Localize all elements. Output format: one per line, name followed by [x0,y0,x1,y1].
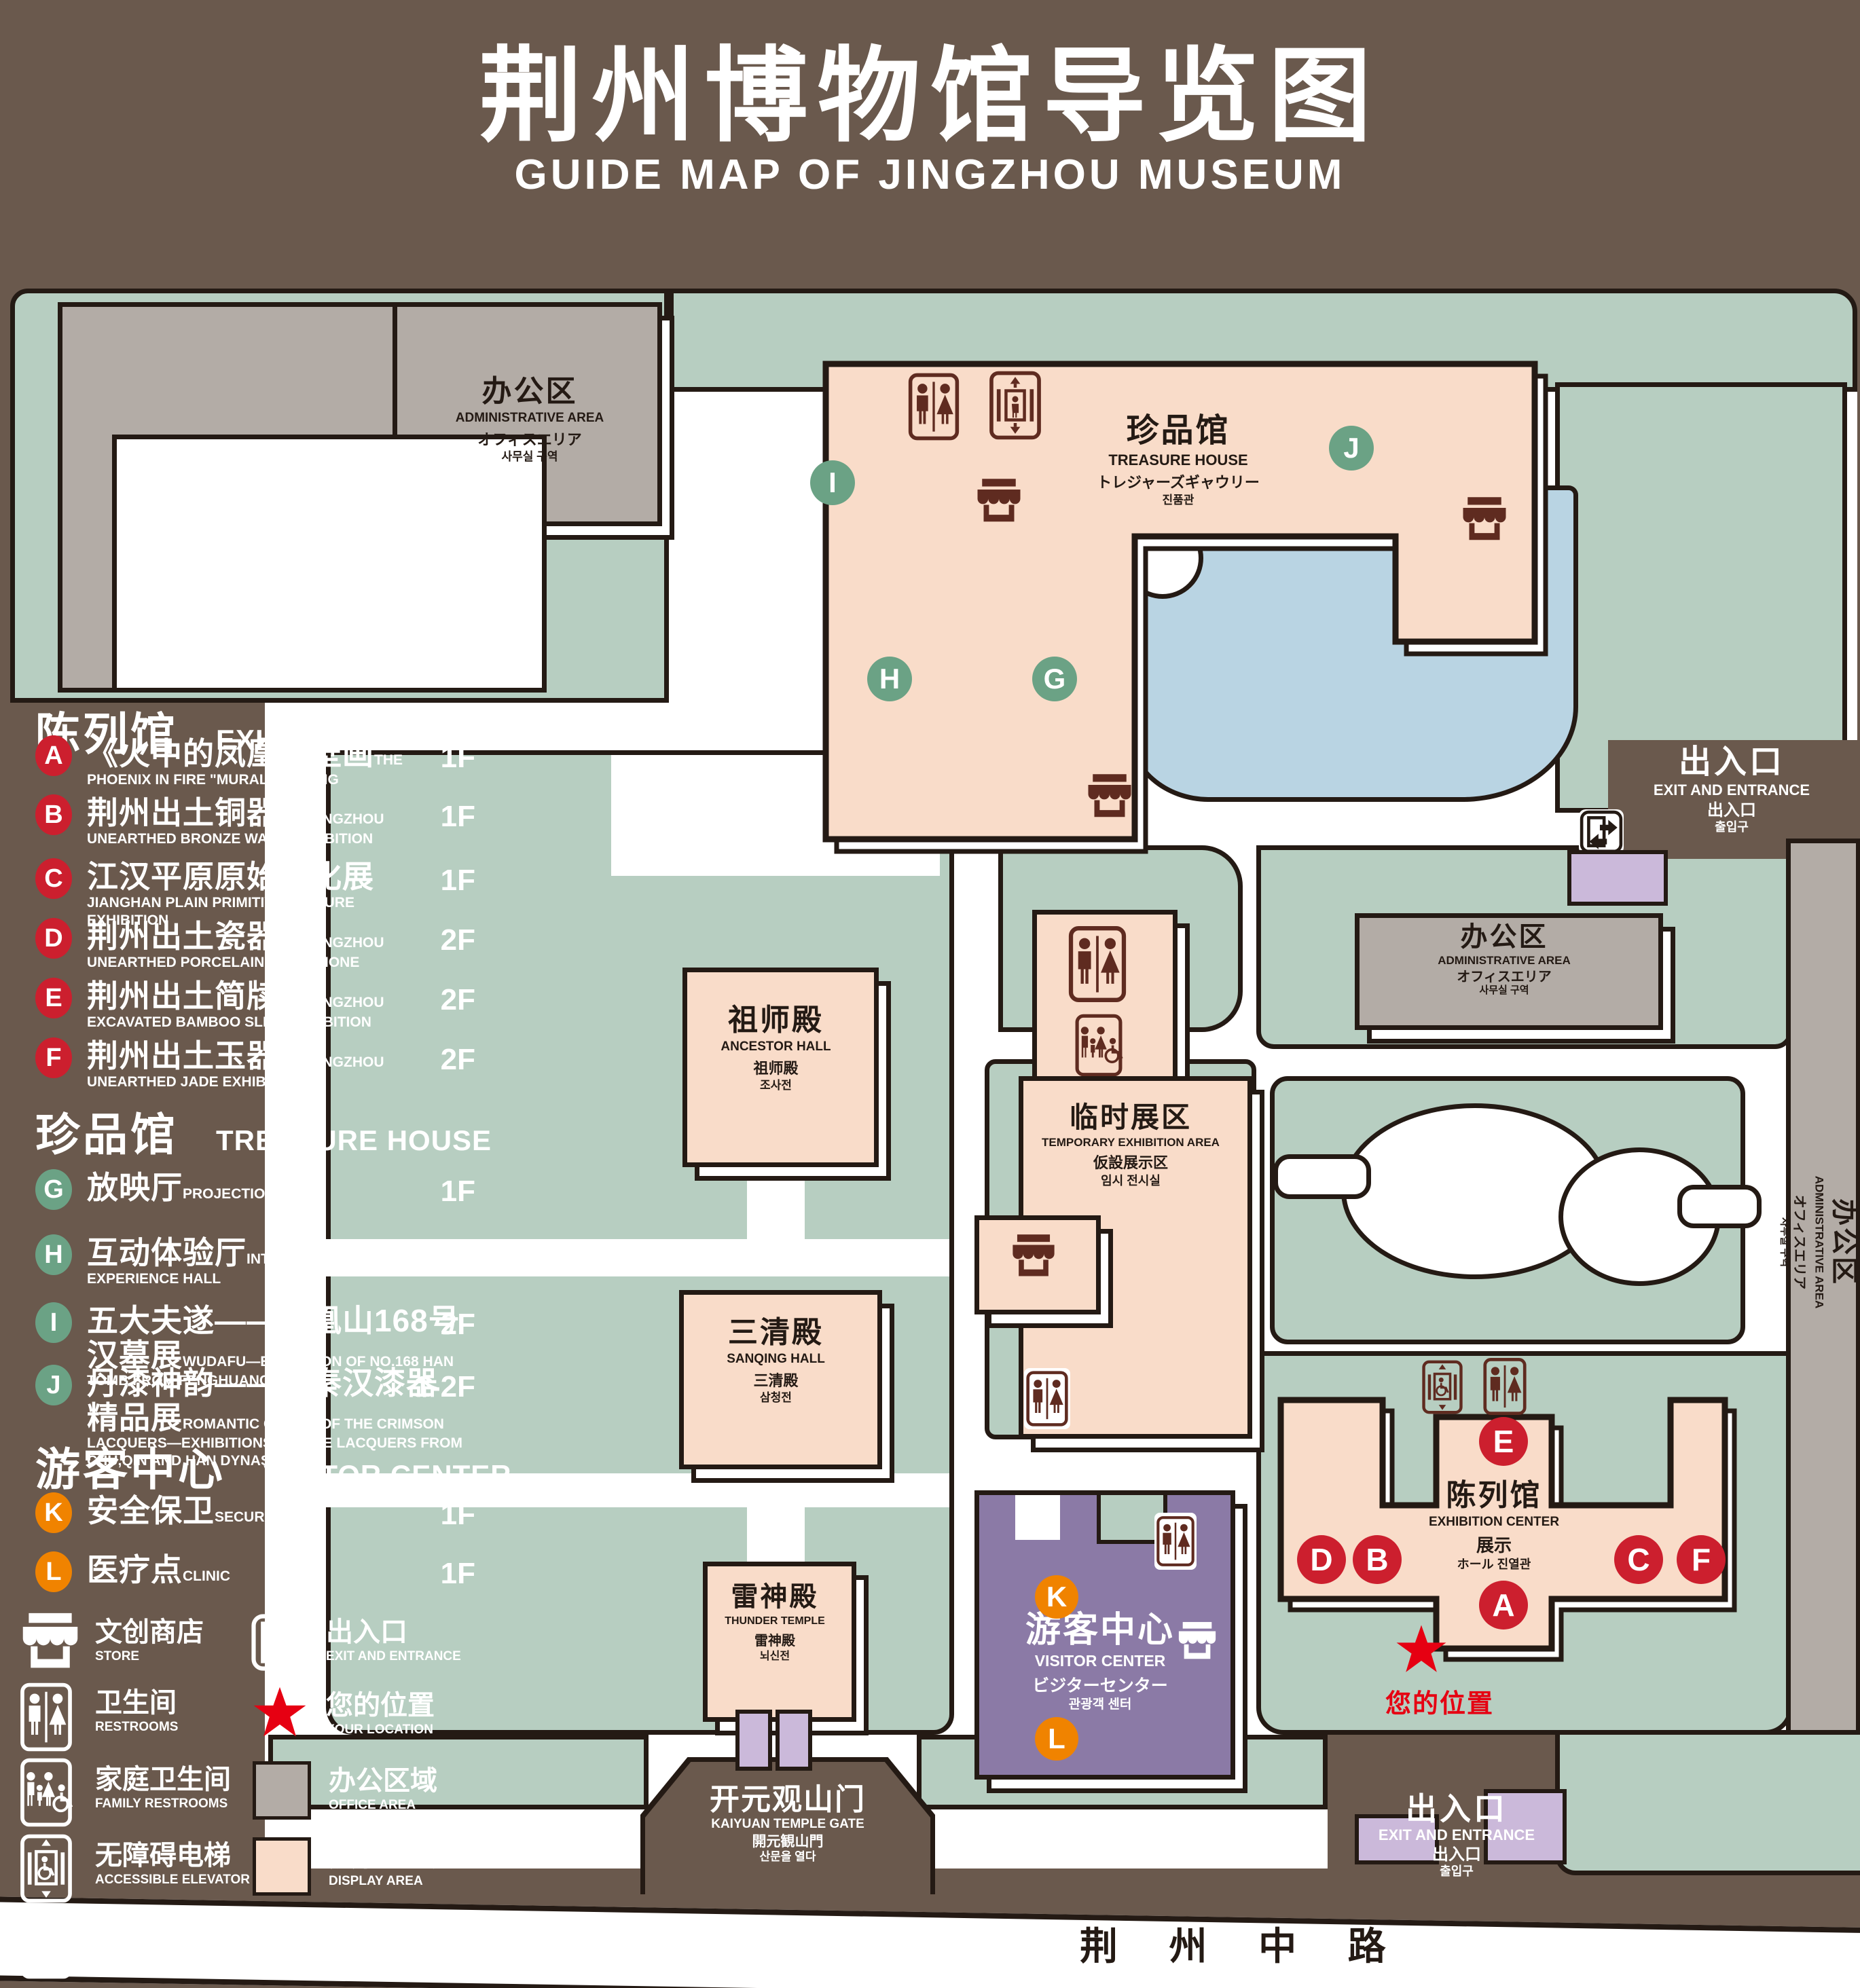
legend-symbol-your-location: 您的位置 YOUR LOCATION [253,1686,307,1742]
exit-icon [1579,809,1624,854]
accessible-elevator-icon [1421,1359,1463,1415]
store-icon [1085,774,1134,820]
admin-right-label: 办公区 ADMINISTRATIVE AREA オフィスエリア 사무실 구역 [1778,1124,1859,1361]
restroom-icon [1154,1513,1197,1570]
ancestor-label: 祖师殿 ANCESTOR HALL 祖师殿 조사전 [686,1004,866,1092]
display-area-swatch [253,1837,311,1896]
admin-topleft-label: 办公区 ADMINISTRATIVE AREA オフィスエリア 사무실 구역 [394,375,665,463]
admin-mid-label: 办公区 ADMINISTRATIVE AREA オフィスエリア 사무실 구역 [1375,922,1633,997]
legend-section-visitor: 游客中心 VISITOR CENTER [35,1433,512,1498]
map-marker-J: J [1329,426,1374,471]
family-restroom-icon [19,1757,73,1828]
accessible-elevator-icon [19,1833,73,1904]
path-vertical-stem-1 [747,1158,805,1242]
temporary-label: 临时展区 TEMPORARY EXHIBITION AREA 仮設展示区 임시 … [1022,1101,1239,1188]
exit-topright-label: 出入口 EXIT AND ENTRANCE 出入口 출입구 [1616,745,1847,834]
gate-pillar-east [776,1710,812,1771]
green-bottomright [1555,1730,1860,1875]
store-icon [974,479,1023,525]
map-marker-C: C [1614,1535,1663,1584]
admin-courtyard [112,435,547,693]
gate-pillar-west [735,1710,772,1771]
map-marker-B: B [1353,1535,1402,1584]
garden-path-west [1273,1154,1371,1199]
map-marker-K: K [1035,1575,1078,1619]
map-marker-L: L [1035,1717,1078,1761]
your-location-star-icon [1396,1624,1447,1674]
restroom-icon [19,1682,73,1752]
restroom-icon [1482,1357,1527,1416]
legend-symbol-exit: 出入口 EXIT AND ENTRANCE [250,1613,310,1676]
page-title: 荆州博物馆导览图 [0,12,1860,162]
road-name: 荆 州 中 路 [1080,1916,1433,1971]
page-subtitle: GUIDE MAP OF JINGZHOU MUSEUM [0,151,1860,199]
office-area-swatch [253,1761,311,1820]
path-vertical-stem-2 [747,1504,805,1565]
legend-symbol-family-restrooms: 家庭卫生间 FAMILY RESTROOMS [19,1757,73,1831]
map-marker-D: D [1297,1535,1346,1584]
legend-symbol-restrooms: 卫生间 RESTROOMS [19,1682,73,1756]
restroom-icon [1068,925,1127,1004]
legend-symbol-elevator: 电梯 Elevator [19,1909,73,1983]
your-location-star-icon [253,1686,307,1738]
visitor-center-notch [1015,1495,1060,1540]
legend-symbol-accessible-elevator: 无障碍电梯 ACCESSIBLE ELEVATOR [19,1833,73,1907]
family-restroom-icon [1074,1013,1123,1078]
legend-section-treasure: 珍品馆 TREASURE HOUSE [35,1099,492,1164]
map-marker-H: H [867,657,912,701]
sanqing-label: 三清殿 SANQING HALL 三清殿 삼청전 [682,1316,869,1404]
restroom-icon [1024,1368,1070,1429]
elevator-icon [19,1909,73,1980]
exhibition-label: 陈列馆 EXHIBITION CENTER 展示 ホール 진열관 [1385,1479,1603,1571]
legend-symbol-display-area: 展示区域 DISPLAY AREA [253,1837,311,1899]
kaiyuan-gate-label: 开元观山门 KAIYUAN TEMPLE GATE 開元観山門 산문을 열다 [652,1784,924,1863]
map-marker-A: A [1479,1581,1528,1630]
store-icon [19,1613,81,1672]
legend-symbol-office-area: 办公区域 OFFICE AREA [253,1761,311,1823]
restroom-icon [907,372,961,441]
your-location-text: 您的位置 [1385,1682,1535,1720]
elevator-icon [988,370,1042,441]
legend-symbol-store: 文创商店 STORE [19,1613,81,1676]
store-icon [1010,1234,1057,1279]
map-marker-E: E [1479,1417,1528,1466]
exit-icon [250,1613,310,1672]
treasure-label: 珍品馆 TREASURE HOUSE トレジャーズギャウリー 진품관 [1039,413,1317,507]
store-icon [1176,1621,1218,1662]
store-icon [1460,497,1509,543]
entrance-building-topright [1567,850,1668,906]
exit-bottomright-label: 出入口 EXIT AND ENTRANCE 出入口 출입구 [1341,1792,1572,1877]
map-marker-G: G [1032,657,1077,701]
map-marker-F: F [1677,1535,1726,1584]
garden-path-east [1677,1185,1762,1228]
thunder-label: 雷神殿 THUNDER TEMPLE 雷神殿 뇌신전 [706,1582,843,1663]
map-marker-I: I [810,460,855,505]
guide-map-poster: 荆州博物馆导览图 GUIDE MAP OF JINGZHOU MUSEUM 办公… [0,0,1860,1988]
